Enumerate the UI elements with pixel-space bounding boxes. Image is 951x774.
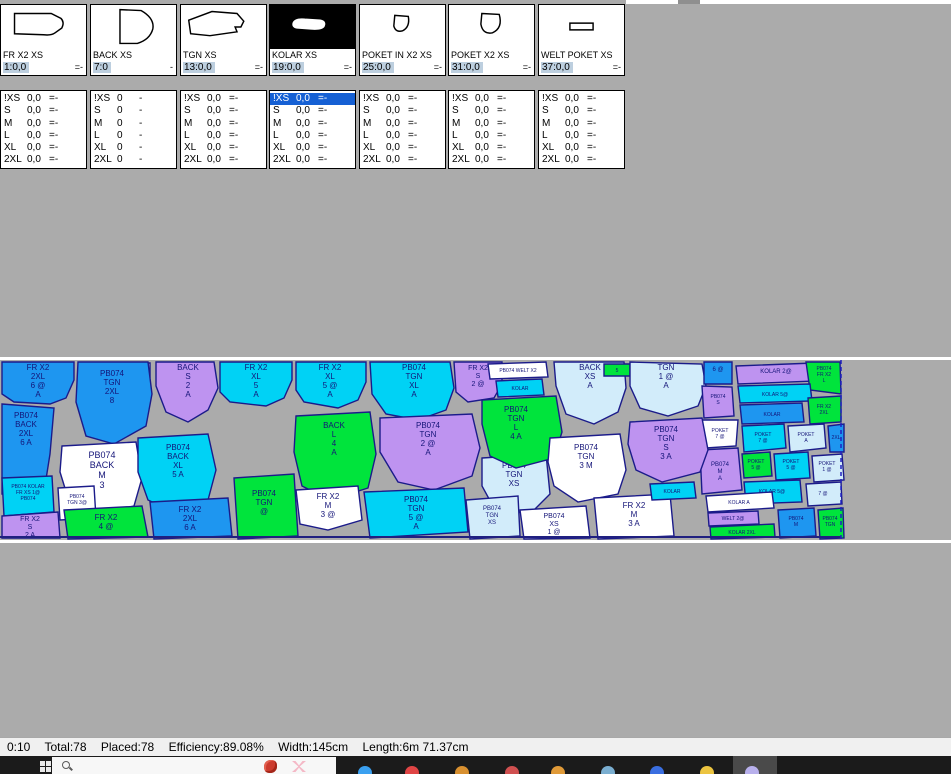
marker-piece-label: 2XL <box>832 435 841 441</box>
marker-piece-label: PB074 <box>404 495 429 504</box>
marker-piece-label: M <box>325 501 332 510</box>
marker-piece-label: 3 A <box>660 452 672 461</box>
size-column-5: !XS0,0=-S0,0=-M0,0=-L0,0=-XL0,0=-2XL0,0=… <box>359 90 446 169</box>
pattern-thumbnail <box>1 5 86 49</box>
marker-piece-label: 2XL <box>183 514 198 523</box>
marker-piece-label: KOLAR <box>664 489 681 495</box>
marker-piece-label: PB074 <box>543 513 564 520</box>
taskbar-app-8-icon[interactable] <box>700 766 714 774</box>
pattern-count-value[interactable]: 19:0,0 <box>272 62 304 73</box>
size-row-M-col2[interactable]: M0- <box>91 118 176 130</box>
marker-piece-label: BACK <box>15 420 37 429</box>
taskbar-app-7-icon[interactable] <box>650 766 664 774</box>
marker-piece-label: PB074 <box>483 506 502 512</box>
marker-piece-label: PB074 <box>20 496 35 502</box>
search-icon <box>62 761 70 769</box>
pattern-thumbnail <box>181 5 266 49</box>
marker-piece-label: BACK <box>579 363 601 372</box>
size-column-6: !XS0,0=-S0,0=-M0,0=-L0,0=-XL0,0=-2XL0,0=… <box>448 90 535 169</box>
marker-piece-label: FR X2 <box>95 513 118 522</box>
marker-piece-label: M <box>718 469 723 475</box>
pattern-name: POKET IN X2 XS <box>362 50 432 60</box>
marker-piece-label: PB074 <box>711 462 730 468</box>
marker-piece-14[interactable] <box>704 362 732 384</box>
size-row-S-col4[interactable]: S0,0=- <box>270 105 355 117</box>
size-column-2: !XS0-S0-M0-L0-XL0-2XL0- <box>90 90 177 169</box>
marker-piece-label: TGN <box>408 504 425 513</box>
marker-piece-label: 4 @ <box>99 522 114 531</box>
marker-piece-label: XS <box>488 520 496 526</box>
marker-piece-label: 7 @ <box>715 434 724 440</box>
pattern-name: WELT POKET XS <box>541 50 613 60</box>
marker-piece-label: XS <box>549 521 559 528</box>
top-horizontal-scrollbar[interactable] <box>626 0 951 4</box>
marker-piece-label: A <box>411 390 417 399</box>
size-row-M-col7[interactable]: M0,0=- <box>539 118 624 130</box>
marker-piece-label: 5 A <box>172 470 184 479</box>
marker-piece-label: WELT 2@ <box>722 516 745 522</box>
marker-piece-label: 2 @ <box>472 381 485 388</box>
pattern-count-value[interactable]: 7:0 <box>93 62 111 73</box>
marker-piece-label: PB074 <box>574 443 599 452</box>
size-column-7: !XS0,0=-S0,0=-M0,0=-L0,0=-XL0,0=-2XL0,0=… <box>538 90 625 169</box>
marker-piece-label: M <box>631 510 638 519</box>
marker-piece-label: A <box>327 390 333 399</box>
pattern-count-suffix: =- <box>255 62 263 72</box>
size-row-2XL-col3[interactable]: 2XL0,0=- <box>181 154 266 166</box>
bow-emoji-icon <box>292 761 306 772</box>
status-time: 0:10 <box>7 740 30 754</box>
size-row-M-col4[interactable]: M0,0=- <box>270 118 355 130</box>
marker-piece-label: 5 @ <box>786 465 795 471</box>
marker-piece-label: A <box>587 381 593 390</box>
pattern-count-value[interactable]: 13:0,0 <box>183 62 215 73</box>
pattern-count-value[interactable]: 31:0,0 <box>451 62 483 73</box>
marker-piece-label: 6 @ <box>31 381 46 390</box>
marker-piece-label: TGN <box>825 522 836 528</box>
marker-piece-label: L <box>823 378 826 384</box>
size-row-2XL-col6[interactable]: 2XL0,0=- <box>449 154 534 166</box>
status-bar: 0:10 Total:78 Placed:78 Efficiency:89.08… <box>0 737 951 756</box>
pattern-thumbnail <box>449 5 534 49</box>
marker-piece-label: 6 @ <box>712 367 723 373</box>
marker-piece-label: 2XL <box>19 429 34 438</box>
marker-piece-label: 5 <box>254 381 259 390</box>
size-row-XL-col5[interactable]: XL0,0=- <box>360 142 445 154</box>
pattern-card-kolar-xs[interactable]: KOLAR XS19:0,0=- <box>269 4 356 76</box>
size-row-L-col2[interactable]: L0- <box>91 130 176 142</box>
status-placed: Placed:78 <box>101 740 154 754</box>
size-row-2XL-col1[interactable]: 2XL0,0=- <box>1 154 86 166</box>
marker-piece-label: 4 <box>332 439 337 448</box>
taskbar-app-3-icon[interactable] <box>455 766 469 774</box>
marker-piece-label: PB074 WELT X2 <box>499 368 537 374</box>
marker-piece-label: A <box>718 476 722 482</box>
marker-piece-label: S <box>28 524 33 531</box>
marker-piece-label: 1 @ <box>822 467 831 473</box>
marker-piece-label: BACK <box>177 363 199 372</box>
marker-piece-label: 3 <box>99 480 104 490</box>
pattern-count-suffix: =- <box>344 62 352 72</box>
marker-piece-label: XL <box>173 461 183 470</box>
pattern-thumbnail <box>270 5 355 49</box>
scrollbar-thumb[interactable] <box>678 0 700 4</box>
taskbar-search-input[interactable] <box>52 757 336 774</box>
marker-piece-label: 3 @ <box>321 510 336 519</box>
marker-piece-label: 1 @ <box>659 372 674 381</box>
marker-piece-label: TGN 3@ <box>67 500 87 506</box>
size-row-L-col6[interactable]: L0,0=- <box>449 130 534 142</box>
size-row-2XL-col5[interactable]: 2XL0,0=- <box>360 154 445 166</box>
marker-piece-label: TGN <box>508 414 525 423</box>
size-row-XS-col2[interactable]: !XS0- <box>91 93 176 105</box>
size-row-L-col1[interactable]: L0,0=- <box>1 130 86 142</box>
marker-piece-label: PB074 <box>416 421 441 430</box>
marker-piece-label: A <box>413 522 419 531</box>
size-row-M-col6[interactable]: M0,0=- <box>449 118 534 130</box>
marker-piece-label: FR X2 <box>20 516 40 523</box>
marker-piece-label: 2XL <box>820 410 829 416</box>
pattern-count-suffix: - <box>170 62 173 72</box>
pattern-name: KOLAR XS <box>272 50 317 60</box>
size-row-S-col5[interactable]: S0,0=- <box>360 105 445 117</box>
size-row-M-col3[interactable]: M0,0=- <box>181 118 266 130</box>
flower-emoji-icon <box>264 760 277 773</box>
marker-piece-label: TGN <box>578 452 595 461</box>
marker-piece-label: 1 @ <box>548 529 561 536</box>
marker-piece-label: BACK <box>90 460 115 470</box>
taskbar-app-4-icon[interactable] <box>505 766 519 774</box>
marker-piece-label: 5 @ <box>323 381 338 390</box>
marker-piece-label: 5 <box>616 368 619 374</box>
marker-piece-label: PB074 <box>166 443 191 452</box>
pattern-count-suffix: =- <box>434 62 442 72</box>
marker-piece-label: 2 @ <box>421 439 436 448</box>
size-row-S-col6[interactable]: S0,0=- <box>449 105 534 117</box>
marker-piece-label: 6 A <box>184 523 196 532</box>
size-column-4: !XS0,0=-S0,0=-M0,0=-L0,0=-XL0,0=-2XL0,0=… <box>269 90 356 169</box>
pattern-card-poket-in-x2-xs[interactable]: POKET IN X2 XS25:0,0=- <box>359 4 446 76</box>
size-row-L-col7[interactable]: L0,0=- <box>539 130 624 142</box>
marker-piece-label: FR X2 <box>317 492 340 501</box>
marker-piece-label: @ <box>260 507 268 516</box>
marker-piece-label: FR X2 <box>468 365 488 372</box>
marker-piece-label: PB074 <box>14 411 39 420</box>
marker-piece-label: PB074 <box>100 369 125 378</box>
size-row-2XL-col4[interactable]: 2XL0,0=- <box>270 154 355 166</box>
size-row-XS-col7[interactable]: !XS0,0=- <box>539 93 624 105</box>
marker-piece-label: M <box>794 522 798 528</box>
marker-piece-label: BACK <box>167 452 189 461</box>
marker-piece-label: FR X2 <box>245 363 268 372</box>
marker-piece-label: S <box>185 372 190 381</box>
marker-piece-label: KOLAR <box>512 386 529 392</box>
marker-piece-label: 7 @ <box>818 491 827 497</box>
size-row-2XL-col2[interactable]: 2XL0- <box>91 154 176 166</box>
marker-piece-label: TGN <box>658 434 675 443</box>
size-row-L-col3[interactable]: L0,0=- <box>181 130 266 142</box>
marker-piece-label: 5 @ <box>409 513 424 522</box>
marker-piece-label: KOLAR 2@ <box>760 369 791 375</box>
size-row-XS-col1[interactable]: !XS0,0=- <box>1 93 86 105</box>
marker-piece-label: FR X2 <box>27 363 50 372</box>
marker-piece-label: KOLAR <box>764 412 781 418</box>
marker-piece-label: 3 M <box>579 461 593 470</box>
pattern-count-suffix: =- <box>613 62 621 72</box>
marker-piece-label: 8 <box>110 396 115 405</box>
marker-piece-label: BACK <box>323 421 345 430</box>
size-row-XL-col6[interactable]: XL0,0=- <box>449 142 534 154</box>
pattern-thumbnail <box>91 5 176 49</box>
marker-piece-label: L <box>332 430 337 439</box>
marker-piece-label: 3 A <box>628 519 640 528</box>
size-row-M-col5[interactable]: M0,0=- <box>360 118 445 130</box>
size-column-3: !XS0,0=-S0,0=-M0,0=-L0,0=-XL0,0=-2XL0,0=… <box>180 90 267 169</box>
size-row-XS-col6[interactable]: !XS0,0=- <box>449 93 534 105</box>
pattern-card-welt-poket-xs[interactable]: WELT POKET XS37:0,0=- <box>538 4 625 76</box>
marker-piece-label: 2XL <box>105 387 120 396</box>
windows-taskbar <box>0 756 951 774</box>
marker-piece-label: PB074 <box>504 405 529 414</box>
marker-piece-label: XS <box>509 479 520 488</box>
size-row-XS-col5[interactable]: !XS0,0=- <box>360 93 445 105</box>
marker-piece-label: L <box>514 423 519 432</box>
size-row-2XL-col7[interactable]: 2XL0,0=- <box>539 154 624 166</box>
marker-piece-label: TGN <box>256 498 273 507</box>
size-row-XL-col2[interactable]: XL0- <box>91 142 176 154</box>
marker-piece-label: KOLAR 2XL <box>728 530 755 536</box>
marker-piece-label: A <box>425 448 431 457</box>
marker-piece-label: 7 @ <box>758 438 767 444</box>
marker-piece-label: TGN <box>420 430 437 439</box>
size-row-XL-col3[interactable]: XL0,0=- <box>181 142 266 154</box>
pattern-name: BACK XS <box>93 50 132 60</box>
size-row-XL-col7[interactable]: XL0,0=- <box>539 142 624 154</box>
status-length: Length:6m 71.37cm <box>362 740 468 754</box>
taskbar-app-2-icon[interactable] <box>405 766 419 774</box>
marker-piece-label: TGN <box>506 470 523 479</box>
size-row-L-col5[interactable]: L0,0=- <box>360 130 445 142</box>
size-row-L-col4[interactable]: L0,0=- <box>270 130 355 142</box>
taskbar-app-5-icon[interactable] <box>551 766 565 774</box>
marker-piece-label: PB074 <box>402 363 427 372</box>
pattern-count-value[interactable]: 25:0,0 <box>362 62 394 73</box>
marker-piece-label: TGN <box>104 378 121 387</box>
pattern-thumbnail <box>539 5 624 49</box>
marker-nesting-area[interactable]: FR X22XL6 @A4PB074TGN2XL8BACKS2AFR X2XL5… <box>0 360 951 540</box>
marker-piece-label: 5 @ <box>751 465 760 471</box>
marker-piece-label: KOLAR A <box>728 500 750 506</box>
size-row-S-col2[interactable]: S0- <box>91 105 176 117</box>
marker-bottom-edge <box>0 540 951 543</box>
taskbar-app-1-icon[interactable] <box>358 766 372 774</box>
marker-piece-label: A <box>35 390 41 399</box>
size-row-M-col1[interactable]: M0,0=- <box>1 118 86 130</box>
pattern-count-value[interactable]: 1:0,0 <box>3 62 29 73</box>
pattern-card-tgn-xs[interactable]: TGN XS13:0,0=- <box>180 4 267 76</box>
marker-piece-label: TGN <box>486 513 499 519</box>
pattern-count-suffix: =- <box>523 62 531 72</box>
marker-piece-label: TGN <box>406 372 423 381</box>
size-row-XL-col1[interactable]: XL0,0=- <box>1 142 86 154</box>
taskbar-app-6-icon[interactable] <box>601 766 615 774</box>
size-row-S-col1[interactable]: S0,0=- <box>1 105 86 117</box>
marker-piece-label: FR X2 <box>319 363 342 372</box>
marker-piece-label: XL <box>251 372 261 381</box>
marker-piece-label: XS <box>585 372 596 381</box>
marker-piece-label: 6 A <box>20 438 32 447</box>
marker-piece-label: A <box>253 390 259 399</box>
marker-piece-label: 4 A <box>510 432 522 441</box>
pattern-card-back-xs[interactable]: BACK XS7:0- <box>90 4 177 76</box>
status-efficiency: Efficiency:89.08% <box>169 740 264 754</box>
marker-piece-label: A <box>663 381 669 390</box>
app-window: FR X2 XS1:0,0=-BACK XS7:0-TGN XS13:0,0=-… <box>0 0 951 774</box>
marker-piece-label: FR X2 <box>623 501 646 510</box>
pattern-name: TGN XS <box>183 50 217 60</box>
size-row-XL-col4[interactable]: XL0,0=- <box>270 142 355 154</box>
taskbar-app-9-icon[interactable] <box>745 766 759 774</box>
status-total: Total:78 <box>44 740 86 754</box>
pattern-thumbnail <box>360 5 445 49</box>
pattern-name: FR X2 XS <box>3 50 43 60</box>
pattern-count-suffix: =- <box>75 62 83 72</box>
marker-piece-label: M <box>98 470 106 480</box>
marker-piece-label: 2XL <box>31 372 46 381</box>
marker-piece-label: 2 <box>186 381 191 390</box>
marker-piece-label: FR X2 <box>179 505 202 514</box>
pattern-card-fr-x2-xs[interactable]: FR X2 XS1:0,0=- <box>0 4 87 76</box>
marker-piece-label: XL <box>409 381 419 390</box>
marker-piece-label: XL <box>325 372 335 381</box>
pattern-count-value[interactable]: 37:0,0 <box>541 62 573 73</box>
marker-piece-label: S <box>663 443 668 452</box>
size-row-XS-col4[interactable]: !XS0,0=- <box>270 93 355 105</box>
status-width: Width:145cm <box>278 740 348 754</box>
marker-piece-label: KOLAR 5@ <box>762 392 788 398</box>
size-row-S-col7[interactable]: S0,0=- <box>539 105 624 117</box>
marker-piece-label: S <box>476 373 481 380</box>
pattern-name: POKET X2 XS <box>451 50 509 60</box>
marker-piece-label: A <box>185 390 191 399</box>
marker-piece-label: A <box>331 448 337 457</box>
marker-piece-label: TGN <box>658 363 675 372</box>
marker-piece-label: PB074 <box>88 450 115 460</box>
pattern-card-poket-x2-xs[interactable]: POKET X2 XS31:0,0=- <box>448 4 535 76</box>
size-row-S-col3[interactable]: S0,0=- <box>181 105 266 117</box>
marker-piece-label: PB074 <box>654 425 679 434</box>
marker-piece-label: PB074 <box>252 489 277 498</box>
size-column-1: !XS0,0=-S0,0=-M0,0=-L0,0=-XL0,0=-2XL0,0=… <box>0 90 87 169</box>
size-row-XS-col3[interactable]: !XS0,0=- <box>181 93 266 105</box>
